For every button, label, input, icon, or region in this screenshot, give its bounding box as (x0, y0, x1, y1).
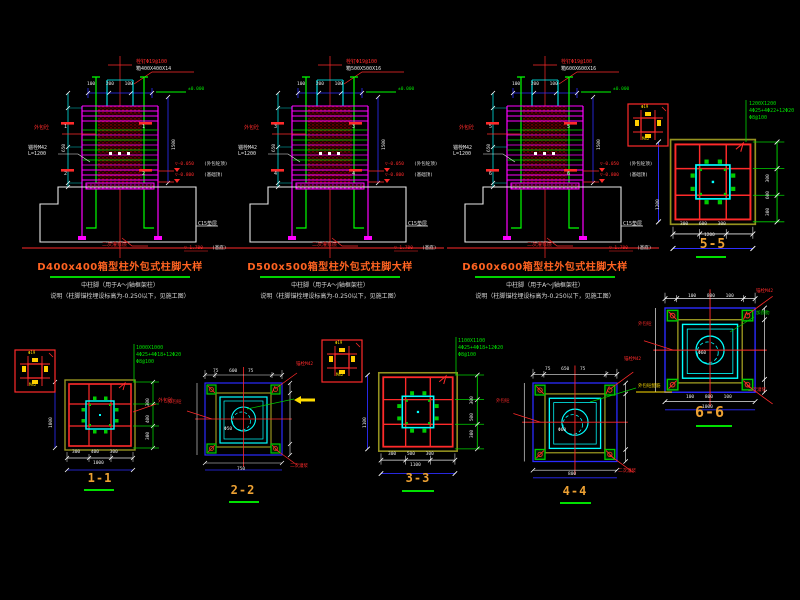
sec6-grout-label: 二次灌浆 (748, 388, 766, 393)
elev3-marker-bot-left: 6 (489, 172, 492, 178)
sec3-spec-3: Φ8@100 (458, 353, 476, 359)
section-2-2-plan (187, 367, 297, 470)
elev3-grout-label: 二次灌浆层 (527, 243, 552, 249)
detail1-bottom-label: M42 (29, 383, 36, 388)
sec4-top-dims: 75 650 75 (545, 367, 585, 372)
elev2-level-a: ▽-0.050 (385, 162, 404, 167)
elev2-level-a-note: (外包砼顶) (414, 162, 437, 167)
sec1-bottom-dims: 300 400 300 (72, 450, 118, 455)
sec1-spec-3: Φ8@100 (136, 360, 154, 366)
elev3-marker-top-left: 5 (489, 125, 492, 131)
sec4-bottom-dim: 800 (568, 472, 576, 477)
elev2-marker-bot-left: 4 (274, 172, 277, 178)
section-2-2-underline (229, 501, 259, 503)
elev1-ground-level: ±0.000 (188, 87, 204, 92)
cad-drawing-canvas: 栓钉Φ19@100 箱400X400X14 ±0.000 100 200 100… (0, 0, 800, 600)
view3-note-2: 说明（柱脚锚栓埋设标高为-0.250以下，见施工图） (415, 294, 675, 301)
elev3-level-b: ▽-0.800 (600, 173, 619, 178)
elev2-stud-label: 栓钉Φ19@100 (346, 60, 377, 66)
elev3-level-a-note: (外包砼顶) (629, 162, 652, 167)
elev1-column-label: 箱400X400X14 (136, 67, 171, 73)
elev1-level-b-note: (基础顶) (204, 173, 223, 178)
sec6-encase-label: 外包砼 (638, 322, 652, 327)
section-1-1-label: 1-1 (70, 472, 130, 486)
sec6-stiffener-label: 加劲肋 (756, 311, 770, 316)
detail2-bottom-label: M42 (336, 373, 343, 378)
elev3-encase-label: 外包砼 (459, 126, 474, 132)
elev3-level-a: ▽-0.050 (600, 162, 619, 167)
sec1-spec-1: 1000X1000 (136, 346, 163, 352)
view3-note-1: 中柱脚（用于A～J轴框架柱） (445, 283, 645, 290)
rebar-spec-leaders (134, 100, 746, 382)
sec4-anchor-label: 锚栓M42 (624, 357, 641, 362)
sec5-spec-2: 4Φ25+4Φ22+12Φ20 (749, 109, 794, 115)
elev1-marker-top-right: 1 (142, 125, 145, 131)
detail3-top-label: Φ19 (641, 105, 648, 110)
elev1-level-c-note: (基底) (212, 246, 226, 251)
sec2-hole-label: Φ50 (224, 427, 232, 432)
elev3-level-c: ▽-1.700 (609, 246, 628, 251)
elev1-right-dim: 1500 (172, 139, 177, 150)
sec3-bottom-dims: 300 500 300 (388, 452, 434, 457)
sec4-grout-label: 二次灌浆 (618, 469, 636, 474)
sec3-total-dim: 1100 (410, 463, 421, 468)
elev2-column-label: 箱500X500X16 (346, 67, 381, 73)
sec5-spec-1: 1200X1200 (749, 102, 776, 108)
elev2-cushion-label: C15垫层 (408, 222, 427, 228)
view1-title: D400x400箱型柱外包式柱脚大样 (20, 262, 220, 274)
sec6-bottom-dims: 100 800 100 (686, 395, 732, 400)
view2-title: D500x500箱型柱外包式柱脚大样 (230, 262, 430, 274)
elev3-level-c-note: (基底) (637, 246, 651, 251)
section-3-3-underline (402, 490, 434, 492)
sec1-tag-leader (133, 404, 156, 412)
sec1-right-dims: 300 400 300 (146, 398, 151, 440)
sec6-top-dims: 100 800 100 (688, 294, 734, 299)
elev2-left-dim: 650 (272, 144, 277, 152)
elev1-left-dim: 650 (62, 144, 67, 152)
section-6-6-underline (696, 425, 732, 427)
section-4-4-label: 4-4 (545, 485, 605, 499)
section-5-5-underline (696, 256, 726, 258)
section-3-3-plan (365, 373, 484, 476)
elev1-level-c: ▽-1.700 (184, 246, 203, 251)
elev1-level-a-note: (外包砼顶) (204, 162, 227, 167)
section-3-3-label: 3-3 (388, 472, 448, 486)
sec2-bottom-dim: 750 (237, 467, 245, 472)
elev3-stud-label: 栓钉Φ19@100 (561, 60, 592, 66)
elev3-anchor-label-2: L=1200 (453, 152, 471, 158)
detail1-top-label: Φ19 (28, 351, 35, 356)
sec3-left-dim: 1100 (363, 417, 368, 428)
view3-title: D600x600箱型柱外包式柱脚大样 (445, 262, 645, 274)
sec1-total-dim: 1000 (93, 461, 104, 466)
detail2-top-label: Φ19 (335, 341, 342, 346)
view1-title-underline (50, 276, 190, 278)
section-1-1-plan (53, 380, 159, 472)
elev2-ground-level: ±0.000 (398, 87, 414, 92)
elev1-anchor-label-2: L=1200 (28, 152, 46, 158)
elev1-marker-bot-right: 2 (142, 172, 145, 178)
sec3-spec-1: 1100X1100 (458, 339, 485, 345)
sec4-encase-label: 外包砼 (496, 399, 510, 404)
detail3-bottom-label: M42 (642, 137, 649, 142)
sec2-detail-arrow (294, 396, 315, 404)
elev3-marker-top-right: 5 (567, 125, 570, 131)
elev3-marker-bot-right: 6 (567, 172, 570, 178)
sec1-left-dim: 1000 (49, 417, 54, 428)
elev2-encase-label: 外包砼 (244, 126, 259, 132)
elev2-top-dims: 100 200 100 (297, 82, 343, 87)
elev2-level-b-note: (基础顶) (414, 173, 433, 178)
sec2-top-dims: 75 600 75 (213, 369, 253, 374)
elev2-marker-top-left: 3 (274, 125, 277, 131)
sec2-encase-label: 外包砼 (168, 400, 182, 405)
elev2-marker-top-right: 3 (352, 125, 355, 131)
view2-note-1: 中柱脚（用于A～J轴框架柱） (230, 283, 430, 290)
sec4-hole-label: Φ60 (558, 428, 566, 433)
section-1-1-underline (84, 489, 114, 491)
elev1-encase-label: 外包砼 (34, 126, 49, 132)
section-4-4-plan (513, 366, 633, 478)
view1-note-1: 中柱脚（用于A～J轴框架柱） (20, 283, 220, 290)
elev2-marker-bot-right: 4 (352, 172, 355, 178)
elev1-marker-top-left: 1 (64, 125, 67, 131)
section-2-2-label: 2-2 (213, 484, 273, 498)
sec5-bottom-dims: 300 600 300 (680, 222, 726, 227)
sec4-rebar-note: 外包砼配筋 (638, 384, 661, 389)
elev1-stud-label: 栓钉Φ19@100 (136, 60, 167, 66)
section-4-4-underline (560, 502, 591, 504)
elev2-level-c-note: (基底) (422, 246, 436, 251)
elev2-level-c: ▽-1.700 (394, 246, 413, 251)
elev3-level-b-note: (基础顶) (629, 173, 648, 178)
section-5-5-label: 5-5 (683, 238, 743, 253)
elev3-left-dim: 650 (487, 144, 492, 152)
view2-title-underline (260, 276, 400, 278)
elev2-level-b: ▽-0.800 (385, 173, 404, 178)
elev2-grout-label: 二次灌浆层 (312, 243, 337, 249)
elev1-level-a: ▽-0.050 (175, 162, 194, 167)
sec5-spec-3: Φ8@100 (749, 116, 767, 122)
elev1-marker-bot-left: 2 (64, 172, 67, 178)
sec6-hole-label: Φ60 (698, 351, 706, 356)
sec1-spec-2: 4Φ25+4Φ18+12Φ20 (136, 353, 181, 359)
elev1-cushion-label: C15垫层 (198, 222, 217, 228)
elev1-top-dims: 100 200 100 (87, 82, 133, 87)
elev3-right-dim: 1500 (597, 139, 602, 150)
elev3-top-dims: 100 200 100 (512, 82, 558, 87)
elev2-right-dim: 1500 (382, 139, 387, 150)
elev1-level-b: ▽-0.800 (175, 173, 194, 178)
sec5-left-dim: 1200 (656, 199, 661, 210)
view3-title-underline (475, 276, 615, 278)
elev3-ground-level: ±0.000 (613, 87, 629, 92)
sec3-right-dims: 300 500 300 (470, 396, 475, 438)
sec5-right-dims: 300 600 300 (766, 174, 771, 216)
sec3-spec-2: 4Φ25+4Φ18+12Φ20 (458, 346, 503, 352)
sec2-grout-label: 二次灌浆 (290, 464, 308, 469)
section-6-6-label: 6-6 (680, 404, 740, 421)
elev2-anchor-label-2: L=1200 (238, 152, 256, 158)
elev3-column-label: 箱600X600X16 (561, 67, 596, 73)
elev1-grout-label: 二次灌浆层 (102, 243, 127, 249)
sec6-anchor-label: 锚栓M42 (756, 289, 773, 294)
elev3-cushion-label: C15垫层 (623, 222, 642, 228)
sec2-anchor-label: 锚栓M42 (296, 362, 313, 367)
